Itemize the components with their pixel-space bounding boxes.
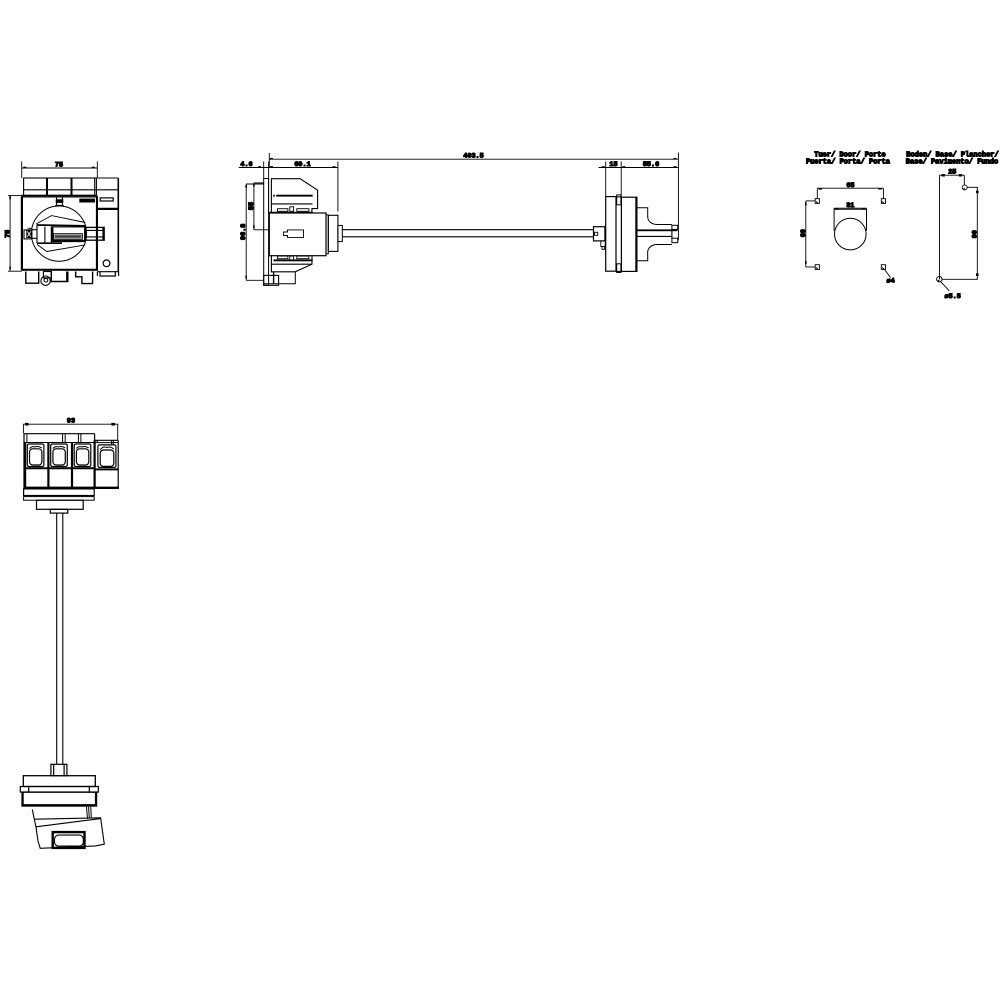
svg-text:90: 90 [972,230,980,238]
svg-text:ø4: ø4 [887,277,895,285]
svg-text:65: 65 [846,182,854,190]
svg-text:69.1: 69.1 [294,161,310,169]
svg-text:96.8: 96.8 [240,224,248,240]
svg-text:55.6: 55.6 [643,161,659,169]
svg-text:75: 75 [4,230,12,238]
svg-text:55: 55 [248,202,256,210]
svg-text:ø5.5: ø5.5 [945,293,961,301]
svg-text:31: 31 [846,202,854,210]
svg-text:15: 15 [609,161,617,169]
svg-text:Puerta/ Porta/ Porta: Puerta/ Porta/ Porta [806,158,891,166]
svg-text:403.5: 403.5 [463,153,483,161]
svg-text:75: 75 [55,161,63,169]
svg-text:93: 93 [67,418,75,426]
svg-text:60: 60 [800,229,808,237]
svg-text:4.6: 4.6 [240,161,252,169]
svg-text:25: 25 [948,169,956,177]
svg-text:Base/ Pavimento/ Fundo: Base/ Pavimento/ Fundo [906,158,998,166]
